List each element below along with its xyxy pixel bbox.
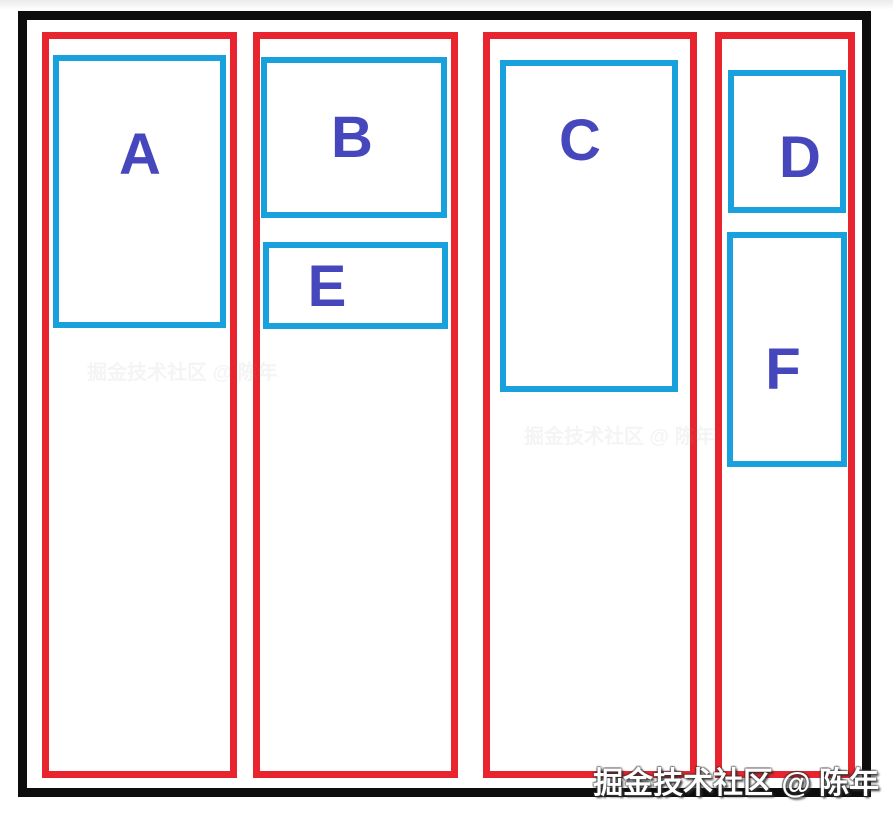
layout-diagram: 掘金技术社区 @ 陈年 掘金技术社区 @ 陈年 A B E C D F 掘金技术… <box>0 0 893 816</box>
item-label-e: E <box>308 258 347 316</box>
item-box-a <box>53 55 226 328</box>
item-label-c: C <box>559 112 601 170</box>
item-label-f: F <box>765 341 800 399</box>
item-box-e <box>263 242 448 329</box>
top-edge-gradient <box>0 0 893 10</box>
item-label-d: D <box>779 129 821 187</box>
faint-watermark-2: 掘金技术社区 @ 陈年 <box>524 420 715 449</box>
watermark: 掘金技术社区 @ 陈年 <box>593 758 879 802</box>
item-label-a: A <box>119 126 161 184</box>
faint-watermark-1: 掘金技术社区 @ 陈年 <box>87 356 278 385</box>
item-label-b: B <box>331 109 373 167</box>
